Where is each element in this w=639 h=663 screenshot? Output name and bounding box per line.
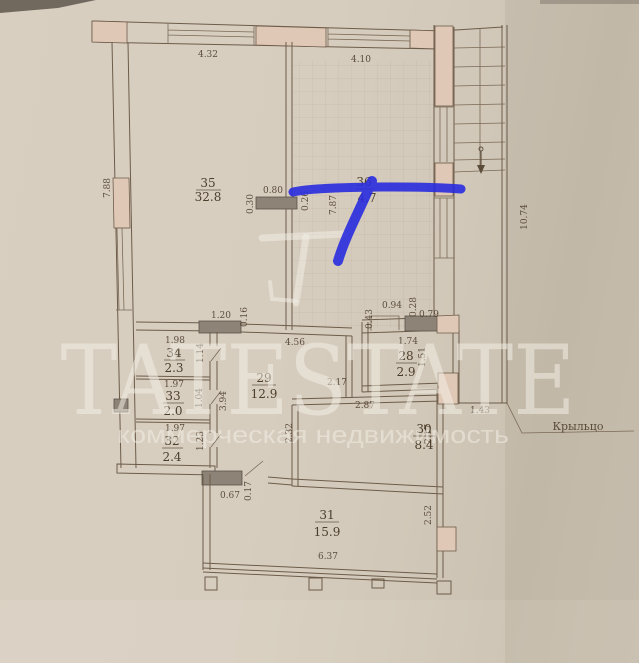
room-35-number: 35	[200, 176, 215, 190]
dim-pier-028: 0.28	[409, 297, 419, 317]
scan-shading-bottom	[0, 600, 639, 663]
dim-left-height: 7.88	[103, 178, 113, 198]
room-31-area: 15.9	[314, 525, 341, 539]
scan-edge-top-right	[540, 0, 639, 4]
scan-edge-top-left	[0, 0, 96, 13]
watermark-tagline: коммерческая недвижимость	[117, 422, 509, 449]
dim-pier-094: 0.94	[382, 301, 402, 311]
room-31-number: 31	[319, 508, 334, 522]
room-32-area: 2.4	[162, 450, 181, 464]
dim-door35-thickness: 0.30	[246, 194, 256, 214]
dim-mid-pier-width: 1.20	[211, 311, 231, 321]
staircase	[454, 28, 505, 174]
dim-top-right: 4.10	[351, 55, 371, 65]
dim-mid-pier-thickness: 0.16	[240, 307, 250, 327]
dim-door31: 0.67	[220, 491, 240, 501]
dim-room31-height: 2.52	[424, 505, 434, 525]
dim-pier-079: 0.79	[419, 310, 439, 320]
watermark-brand: TATESTATE	[61, 325, 576, 437]
scanned-floor-plan-page: 4.32 4.10 7.88 10.74 0.80 0.30 0.26 7.87…	[0, 0, 639, 663]
dim-top-left: 4.32	[198, 50, 218, 60]
dim-door35-width: 0.80	[263, 186, 283, 196]
dim-room31-width: 6.37	[318, 552, 338, 562]
room-35-area: 32.8	[195, 190, 222, 204]
dim-door31-thickness: 0.17	[244, 481, 254, 501]
dim-hall-vertical: 7.87	[329, 195, 339, 215]
stair-direction-arrow-icon	[477, 147, 485, 174]
floor-plan-svg: 4.32 4.10 7.88 10.74 0.80 0.30 0.26 7.87…	[0, 0, 639, 663]
dim-right-height: 10.74	[520, 204, 530, 230]
